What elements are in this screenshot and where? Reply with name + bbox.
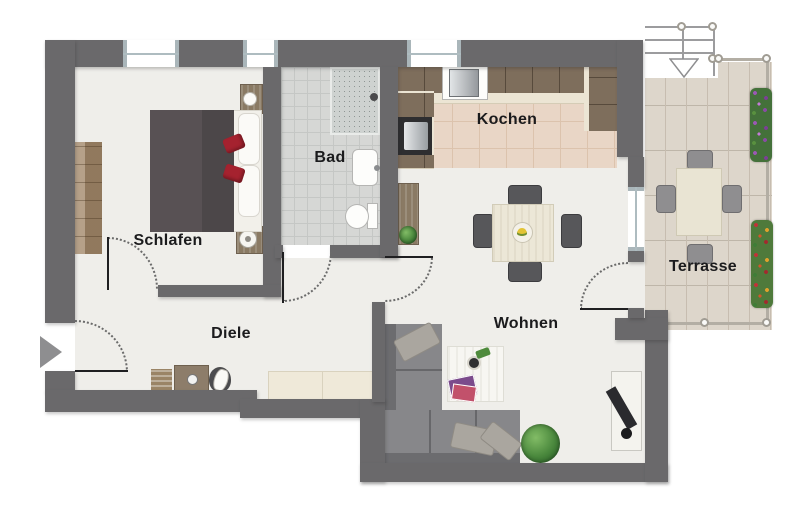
wall-left-lower [45,371,75,392]
floor-doorway [372,258,386,304]
wall-wohnen-bottom [360,463,668,482]
dining-chair [508,261,542,282]
railing-post [762,318,771,327]
flower-box [751,220,773,308]
wall-diele-bottom-step [240,399,374,418]
room-label-wohnen: Wohnen [494,315,559,333]
bath-sink [352,149,378,186]
dining-chair [473,214,494,248]
dining-chair [561,214,582,248]
wall-kochen-right [617,40,643,157]
room-label-terrasse: Terrasse [669,258,737,276]
kitchen-sink-basin [449,69,479,97]
kitchen-cabinet [398,93,434,117]
houseplant [521,424,560,463]
wall-terrace-step [615,318,668,340]
wohnen-door-leaf [385,256,433,258]
stair-arrow-stem [682,27,684,60]
wall-kochen-right-lower [628,157,644,187]
terrace-chair [722,185,742,213]
terrace-table [676,168,722,236]
speaker [621,428,632,439]
room-label-schlafen: Schlafen [133,232,202,250]
terrace-chair [687,150,713,170]
railing-post [762,54,771,63]
wall-terrace-door-jamb [628,308,644,318]
railing-post [708,22,717,31]
wall-schlafen-bad [263,67,281,297]
room-label-kochen: Kochen [477,111,537,129]
hall-dresser [174,365,209,392]
terrace-door-leaf [580,308,628,310]
wall-diele-bottom [45,390,257,412]
kitchen-cabinet [398,155,434,168]
window-terrace [628,187,644,251]
flower-box [750,88,772,162]
window-kochen [407,40,461,67]
window-bad [243,40,278,67]
entrance-door-leaf [75,370,128,372]
wall-terrace-door-jamb [628,250,644,262]
stove-oven [398,117,432,155]
down-arrow-icon [669,58,699,78]
wall-schlafen-bottom [158,285,281,297]
shower-area [330,67,380,135]
window-schlafen [123,40,179,67]
magazines [451,383,477,402]
potted-plant [399,226,417,244]
stair-railing-post-line [713,26,715,76]
railing-post [714,54,723,63]
toilet-bowl [345,204,369,229]
room-label-bad: Bad [314,149,345,167]
bedside-stool [239,230,257,248]
railing-post [677,22,686,31]
hall-sideboard [268,371,375,402]
floorplan-canvas: Schlafen Bad Kochen Diele Wohnen Terrass… [0,0,800,508]
railing-post [700,318,709,327]
bad-door-leaf [282,252,284,303]
shoe-bench [151,369,172,392]
wall-left [45,40,75,323]
terrace-chair [656,185,676,213]
wall-bad-kochen [380,67,398,257]
room-label-diele: Diele [211,325,251,343]
dining-chair [508,185,542,206]
fruit-bowl [512,222,533,243]
bedside-lamp [243,92,257,106]
schlafen-door-leaf [107,237,109,290]
entrance-arrow-icon [40,336,62,368]
wall-diele-wohnen [372,302,385,402]
shower-head [370,93,378,101]
